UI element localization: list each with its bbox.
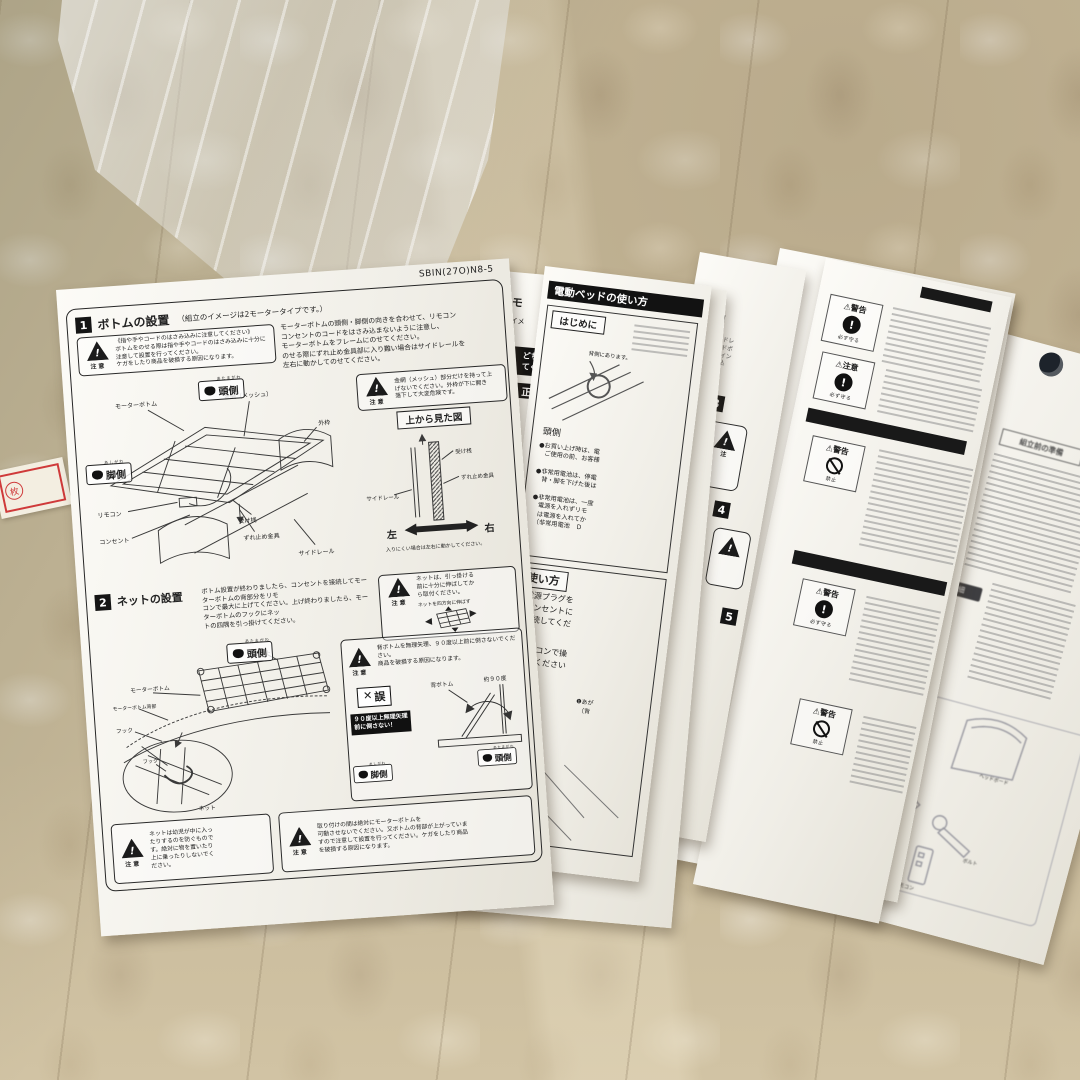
foot-icon xyxy=(92,470,104,480)
mandatory-text: 必ず守る xyxy=(809,618,832,629)
blurred-text-lines xyxy=(848,596,941,698)
warning-label: ⚠警告 xyxy=(843,301,868,317)
prohibited-icon xyxy=(824,456,844,476)
label-side-rail: サイドレール xyxy=(298,548,335,558)
caution-box-mesh: !注意 金網（メッシュ）部分だけを持って上 げないでください。外枠が下に開き 落… xyxy=(356,364,508,411)
prohibited-text: 禁止 xyxy=(812,738,824,747)
photo-of-instruction-manuals: 枚 組立前の準備 部品明細 ヘッドボード xyxy=(0,0,1080,1080)
part-label-bolt: ボルト xyxy=(962,857,978,868)
head-side-badge: あたまがわ頭側 xyxy=(226,641,273,664)
bolt-shape xyxy=(934,827,974,858)
head-icon xyxy=(233,649,245,659)
blurred-text-lines xyxy=(859,449,974,567)
mandatory-text: 必ず守る xyxy=(837,333,860,344)
prohibited-icon xyxy=(811,719,831,739)
tv-label-stopper: ずれ止め金具 xyxy=(461,471,495,481)
net-hook-diagram: ネット モーターボトム モーターボトム背部 フック フック ネット xyxy=(99,642,348,820)
label-net-2: ネット xyxy=(199,804,216,812)
section-2-body: ボトム設置が終わりましたら、コンセントを接続してモーターボトムの背部分をリモ コ… xyxy=(201,576,376,631)
label-motor-back: モーターボトム背部 xyxy=(112,703,156,713)
section-2-title: ネットの設置 xyxy=(116,589,183,610)
remote-label-1: ❶あが （背 xyxy=(575,696,594,716)
tv-label-rail-support: 受け桟 xyxy=(455,446,473,455)
topview-title: 上から見た図 xyxy=(397,406,471,429)
label-outer-frame: 外枠 xyxy=(318,418,331,427)
warning-label: ⚠警告 xyxy=(825,442,850,458)
tilt-ban-text: ９０度以上無理矢理 前に倒さない！ xyxy=(350,710,411,735)
head-side-badge: あたまがわ頭側 xyxy=(477,747,517,767)
warning-block: ⚠警告 ! 必ず守る xyxy=(793,578,856,636)
moving-caution-text: 取り付けの間は絶対にモーターボトムを 可動させないでください。又ボトムの背部が上… xyxy=(317,814,469,856)
label-back-bottom: 背ボトム xyxy=(430,680,454,690)
foot-icon xyxy=(358,771,368,779)
caution-triangle-icon: ! xyxy=(365,376,388,396)
prohibited-text: 禁止 xyxy=(825,475,837,484)
step-4-caution-box: ! xyxy=(704,527,751,591)
intro-label: はじめに xyxy=(550,310,606,334)
section-bar xyxy=(920,287,993,313)
mandatory-icon: ! xyxy=(841,314,862,335)
caution-triangle-icon: ! xyxy=(120,838,143,858)
warning-label: ⚠警告 xyxy=(815,585,840,601)
inspection-tag: 枚 xyxy=(0,457,72,519)
tv-left: 左 xyxy=(385,528,397,542)
caution-triangle-icon: ! xyxy=(288,826,311,846)
section-1-number: 1 xyxy=(75,317,92,334)
blurred-text-lines xyxy=(967,583,1076,702)
label-rail-support: 受け桟 xyxy=(238,516,257,525)
step-5-number: 5 xyxy=(720,607,739,626)
manual-page-bottom-net: SBIN(27O)N8-5 1 ボトムの設置 （組立のイメージは2モータータイプ… xyxy=(56,258,554,936)
blurred-text-lines xyxy=(849,716,916,796)
wrong-badge: ✕誤 xyxy=(356,686,392,708)
caution-box-children: !注意 ネットは幼児が中に入っ たりするのを防ぐもので す。絶対に物を置いたり … xyxy=(110,813,274,884)
tv-right: 右 xyxy=(483,521,495,535)
label-outlet: コンセント xyxy=(99,537,130,546)
label-stopper: ずれ止め金具 xyxy=(243,532,280,543)
caution-triangle-icon: ! xyxy=(348,647,371,667)
left-right-arrow xyxy=(404,519,479,536)
head-side-badge: あたまがわ頭側 xyxy=(198,378,245,401)
brand-circle-logo-icon xyxy=(1036,350,1065,379)
blurred-text-lines xyxy=(963,453,1080,597)
mesh-caution-text: 金網（メッシュ）部分だけを持って上 げないでください。外枠が下に開き 落下して大… xyxy=(394,372,494,402)
warning-block: ⚠警告 禁止 xyxy=(790,698,853,755)
page-border-box: 1 ボトムの設置 （組立のイメージは2モータータイプです。） !注意 《指や手や… xyxy=(65,279,543,892)
label-angle: 約９０度 xyxy=(483,674,507,684)
label-hook: フック xyxy=(116,727,133,735)
topview-diagram: 受け桟 ずれ止め金具 サイドレール 左 右 入りにくい場合は左右に動かしてくださ… xyxy=(360,425,518,559)
label-remote: リモコン xyxy=(97,511,122,520)
caution-triangle-icon: ! xyxy=(86,341,109,361)
part-label-headboard: ヘッドボード xyxy=(978,773,1009,788)
head-side-label: 頭側 xyxy=(542,424,561,439)
headboard-shape xyxy=(951,712,1029,784)
caution-label: ⚠注意 xyxy=(834,358,859,374)
warning-block: ⚠警告 ! 必ず守る xyxy=(821,294,884,352)
mandatory-icon: ! xyxy=(813,599,834,620)
intro-section: はじめに 背側にあります。 頭側 ●お買い上げ時は、電 ご使用の前、お客様 ●非… xyxy=(517,305,699,574)
mandatory-text: 必ず守る xyxy=(829,391,852,402)
label-motor-bottom-2: モーターボトム xyxy=(130,684,170,695)
caution-box-tilt: !注意 背ボトムを無理矢理、９０度以上前に倒さないでください。 商品を破損する原… xyxy=(340,627,533,801)
foot-side-badge: あしがわ脚側 xyxy=(353,764,393,784)
net-caution-text: ネットは、引っ掛ける 前に十分に伸ばしてか ら取付ください。 xyxy=(416,572,481,600)
warning-block: ⚠警告 禁止 xyxy=(803,435,866,492)
caution-triangle-icon: ! xyxy=(387,577,410,597)
exploded-bed-diagram: モーターボトム 金網（メッシュ） 外枠 リモコン コンセント 受け桟 ずれ止め金… xyxy=(81,379,362,589)
doc-code: SBIN(27O)N8-5 xyxy=(419,264,494,279)
tilt-caution-text: 背ボトムを無理矢理、９０度以上前に倒さないでください。 商品を破損する原因になり… xyxy=(377,636,520,669)
label-hook-2: フック xyxy=(142,757,158,765)
caution-box-moving: !注意 取り付けの間は絶対にモーターボトムを 可動させないでください。又ボトムの… xyxy=(278,795,536,873)
label-motor-bottom: モーターボトム xyxy=(115,400,158,411)
foot-side-badge: あしがわ脚側 xyxy=(85,462,132,485)
diagram-1-area: モーターボトム 金網（メッシュ） 外枠 リモコン コンセント 受け桟 ずれ止め金… xyxy=(80,364,515,591)
children-caution-text: ネットは幼児が中に入っ たりするのを防ぐもので す。絶対に物を置いたり 上に乗っ… xyxy=(149,828,215,871)
caution-block: ⚠注意 ! 必ず守る xyxy=(813,351,876,409)
tv-note: 入りにくい場合は左右に動かしてください。 xyxy=(386,540,486,554)
warning-label: ⚠警告 xyxy=(812,705,837,721)
head-icon xyxy=(483,754,493,762)
step-4-number: 4 xyxy=(712,500,731,519)
tv-label-side-rail: サイドレール xyxy=(366,494,400,503)
section-2-number: 2 xyxy=(94,594,111,611)
section-1-title: ボトムの設置 xyxy=(97,311,170,333)
diagram-2-area: ネット モーターボトム モーターボトム背部 フック フック ネット あたまがわ頭… xyxy=(99,625,532,820)
pinch-caution-text: 《指や手やコードのはさみ込みに注意してください》 ボトムをのせる際は指や手やコー… xyxy=(115,328,271,370)
head-icon xyxy=(204,386,216,396)
se-label: 背側にあります。 xyxy=(588,349,631,362)
bullet-3: ●非常用電池は、一度 電源を入れずリモ は電源を入れてか （非常用電池 Ｄ xyxy=(529,493,672,543)
mandatory-icon: ! xyxy=(833,372,854,393)
section-2-header: 2 ネットの設置 xyxy=(94,588,197,611)
